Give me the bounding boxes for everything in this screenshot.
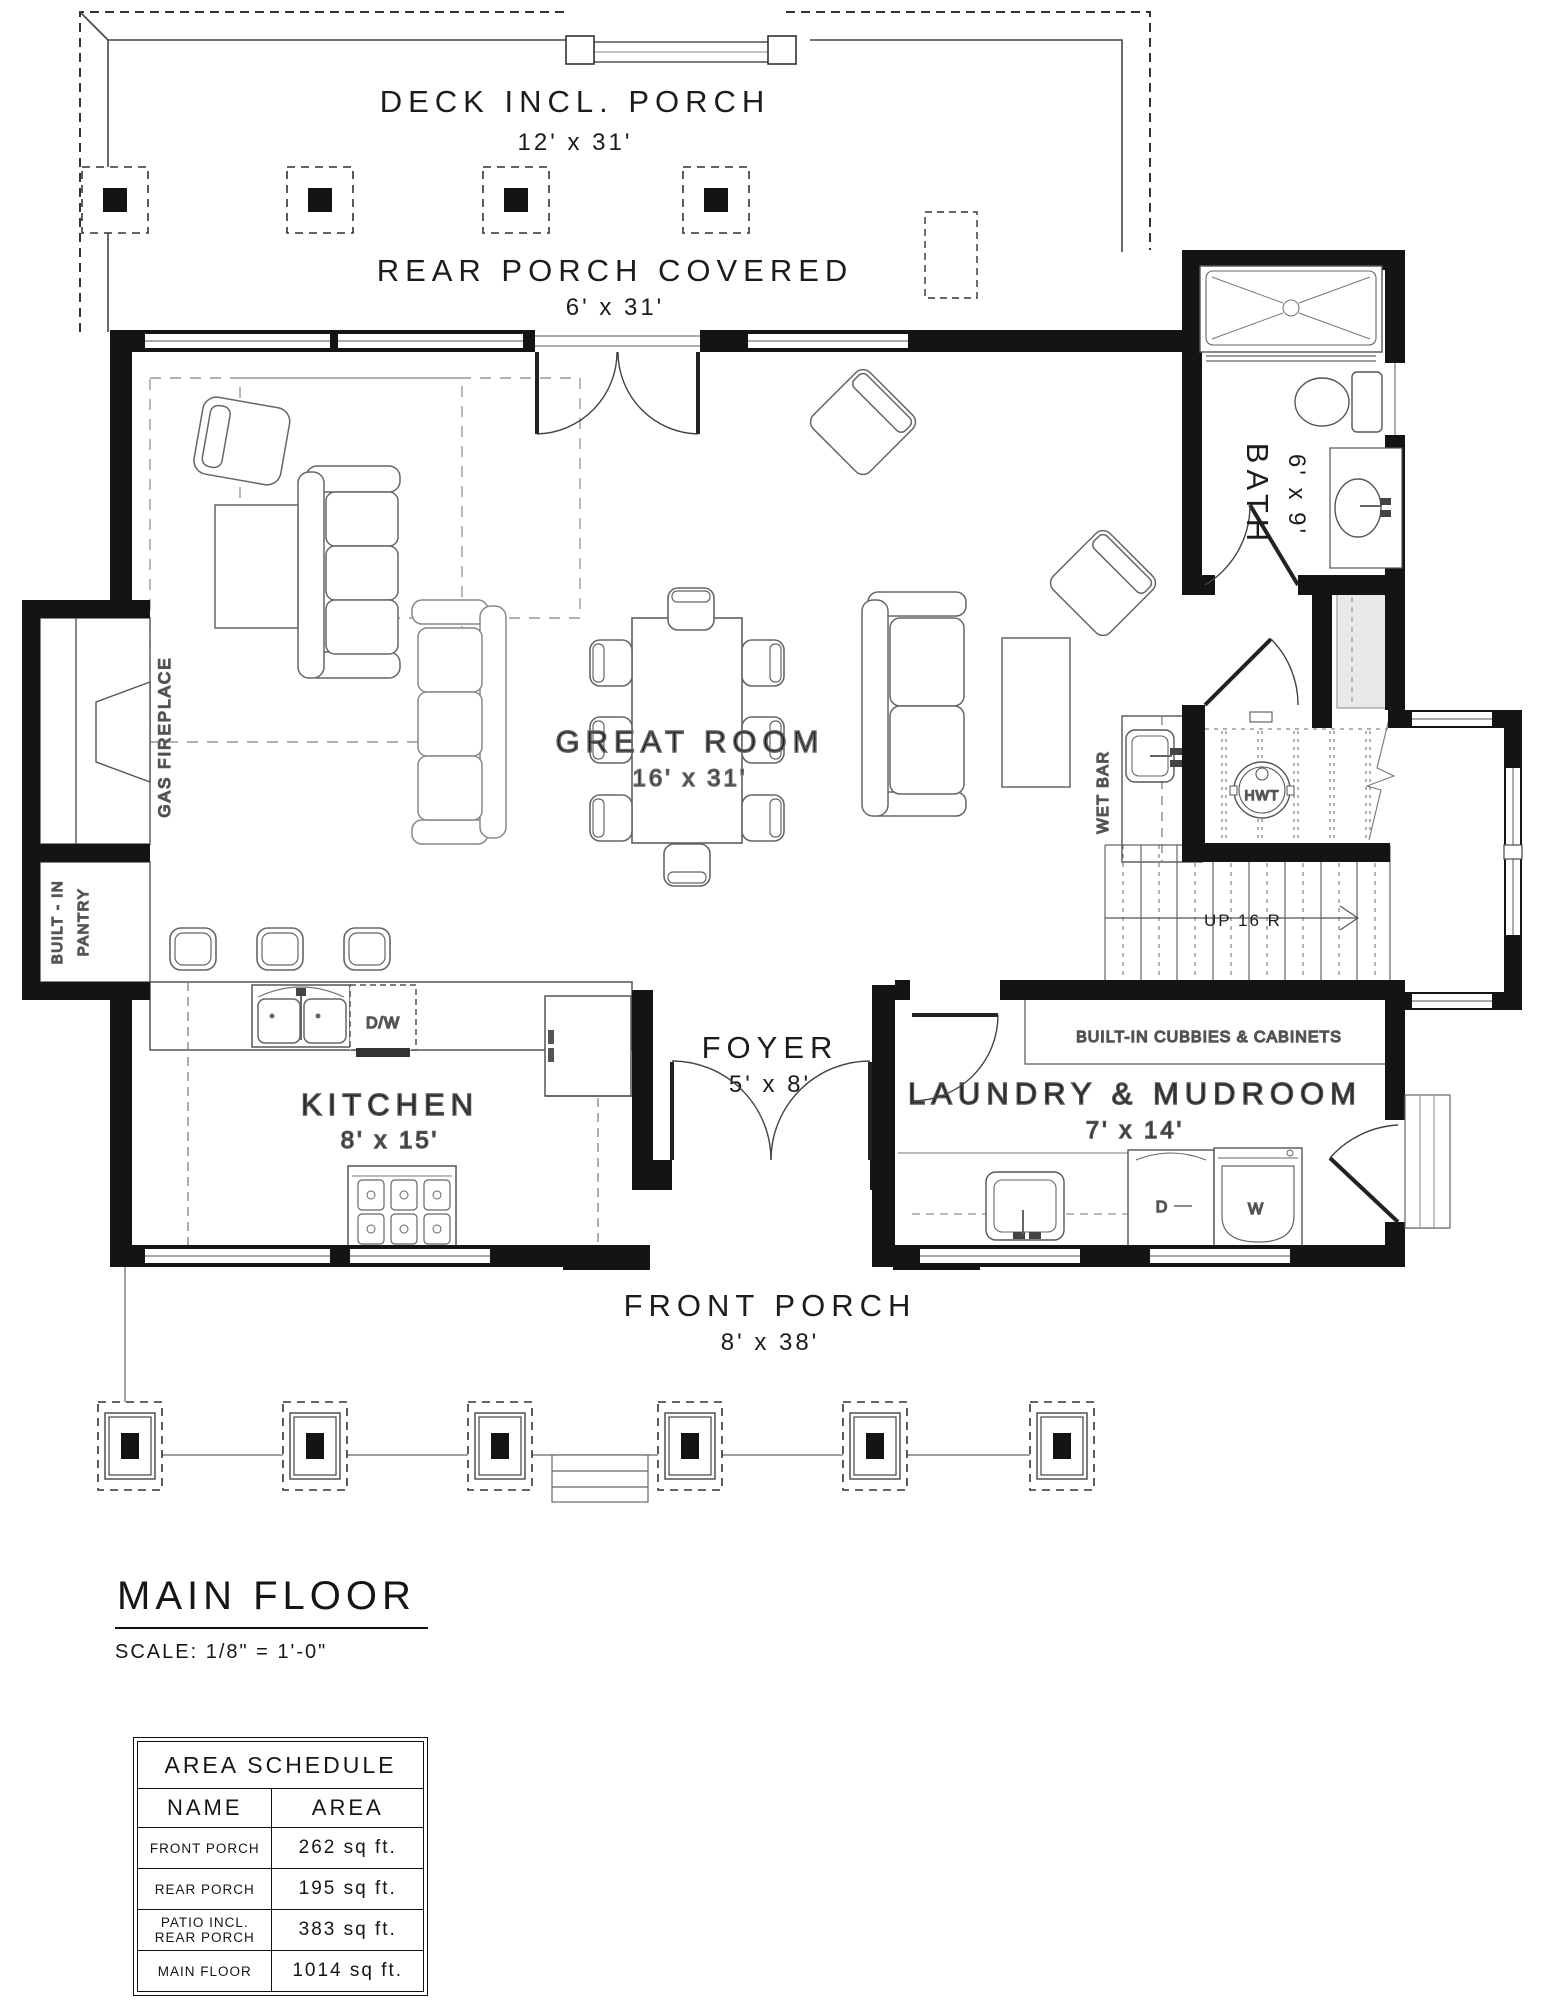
bar-stool — [170, 928, 216, 970]
pantry-label-2: PANTRY — [75, 888, 92, 956]
chaise — [412, 600, 506, 844]
column-header-name: NAME — [138, 1789, 272, 1827]
row-area: 195 sq ft. — [272, 1869, 423, 1909]
bar-stool — [257, 928, 303, 970]
dining-chair — [590, 640, 632, 686]
deck-post-outline — [925, 212, 977, 298]
porch-post — [658, 1402, 722, 1490]
rear-porch-label: REAR PORCH COVERED — [377, 253, 854, 288]
gas-fireplace-label: GAS FIREPLACE — [155, 656, 174, 817]
stair-closet: HWT — [1205, 577, 1388, 839]
upper-stair-shading — [1337, 577, 1388, 708]
deck-stair-post-left — [566, 36, 594, 64]
window-mullion — [1504, 845, 1522, 859]
table-row: PATIO INCL.REAR PORCH 383 sq ft. — [138, 1910, 423, 1951]
row-name: REAR PORCH — [155, 1882, 255, 1897]
pantry-nook: BUILT - IN PANTRY — [40, 862, 150, 982]
deck-post — [287, 167, 353, 233]
row-name-2: REAR PORCH — [155, 1930, 255, 1945]
coffee-table — [1002, 638, 1070, 787]
side-stoop — [1405, 1095, 1450, 1228]
great-room: GREAT ROOM 16' x 31' — [150, 365, 1160, 886]
deck-label: DECK INCL. PORCH — [380, 84, 771, 119]
pantry-label-1: BUILT - IN — [49, 880, 66, 964]
table-row: FRONT PORCH 262 sq ft. — [138, 1828, 423, 1869]
armchair-angled — [806, 365, 919, 478]
table-header-row: NAME AREA — [138, 1789, 423, 1828]
floor-plan-sheet: DECK INCL. PORCH 12' x 31' REAR PORCH CO… — [0, 0, 1541, 2000]
title-block: MAIN FLOOR SCALE: 1/8" = 1'-0" — [115, 1574, 428, 1664]
dining-chair — [590, 795, 632, 841]
armchair — [192, 395, 292, 487]
dryer: D — [1128, 1150, 1214, 1246]
rear-french-doors — [537, 352, 698, 434]
wet-bar-label: WET BAR — [1095, 750, 1112, 833]
porch-post — [843, 1402, 907, 1490]
great-room-label: GREAT ROOM — [556, 724, 825, 759]
fireplace-nook: GAS FIREPLACE — [40, 618, 174, 844]
front-porch-dims: 8' x 38' — [721, 1329, 820, 1356]
dishwasher: D/W — [350, 985, 416, 1057]
deck-post — [483, 167, 549, 233]
washer-label: W — [1248, 1201, 1264, 1218]
area-schedule-title: AREA SCHEDULE — [138, 1742, 423, 1789]
shower — [1200, 266, 1382, 361]
stair-break-line — [1367, 715, 1394, 840]
dining-chair — [664, 844, 710, 886]
area-schedule-table: AREA SCHEDULE NAME AREA FRONT PORCH 262 … — [133, 1737, 428, 1996]
hot-water-tank: HWT — [1230, 712, 1294, 818]
cubbies-label: BUILT-IN CUBBIES & CABINETS — [1076, 1029, 1342, 1046]
row-area: 1014 sq ft. — [272, 1951, 423, 1991]
foyer: FOYER 5' x 8' — [702, 1030, 839, 1098]
deck-post — [82, 167, 148, 233]
kitchen-dims: 8' x 15' — [341, 1127, 440, 1154]
foyer-label: FOYER — [702, 1030, 839, 1065]
kitchen-sink — [252, 985, 350, 1047]
coffee-table — [215, 505, 298, 628]
vanity-sink — [1330, 448, 1402, 568]
kitchen: D/W KITCHEN 8' x 15' — [150, 928, 632, 1250]
laundry-label: LAUNDRY & MUDROOM — [908, 1076, 1362, 1111]
row-area: 383 sq ft. — [272, 1910, 423, 1950]
front-porch-label: FRONT PORCH — [624, 1288, 917, 1323]
range — [348, 1166, 456, 1250]
bath: BATH 6' x 9' — [1200, 266, 1402, 568]
bath-label: BATH — [1240, 443, 1275, 547]
deck: DECK INCL. PORCH 12' x 31' REAR PORCH CO… — [80, 12, 1150, 332]
hall-door — [1205, 639, 1298, 705]
column-header-area: AREA — [272, 1789, 423, 1827]
stairs-label: UP 16 R — [1204, 911, 1282, 930]
refrigerator — [545, 996, 632, 1243]
dining-chair — [742, 640, 784, 686]
porch-post — [468, 1402, 532, 1490]
porch-post — [1030, 1402, 1094, 1490]
foyer-dims: 5' x 8' — [729, 1071, 811, 1098]
rear-porch-dims: 6' x 31' — [566, 294, 665, 321]
bar-stool — [344, 928, 390, 970]
plan-title: MAIN FLOOR — [115, 1574, 428, 1629]
row-name: MAIN FLOOR — [158, 1964, 252, 1979]
loveseat — [862, 592, 966, 816]
bath-dims: 6' x 9' — [1283, 454, 1310, 536]
front-steps — [552, 1455, 648, 1502]
dishwasher-label: D/W — [366, 1015, 400, 1032]
deck-stair-post-right — [768, 36, 796, 64]
table-row: MAIN FLOOR 1014 sq ft. — [138, 1951, 423, 1991]
porch-post — [283, 1402, 347, 1490]
toilet — [1295, 372, 1382, 432]
row-name: PATIO INCL. — [161, 1915, 249, 1930]
deck-dims: 12' x 31' — [518, 129, 633, 156]
hwt-label: HWT — [1245, 787, 1280, 803]
kitchen-label: KITCHEN — [301, 1087, 479, 1122]
sofa — [298, 466, 400, 678]
dining-chair — [668, 588, 714, 630]
laundry-dims: 7' x 14' — [1086, 1117, 1185, 1144]
row-name: FRONT PORCH — [150, 1841, 260, 1856]
laundry: BUILT-IN CUBBIES & CABINETS D W LAUNDRY … — [898, 998, 1393, 1246]
dining-chair — [742, 795, 784, 841]
row-area: 262 sq ft. — [272, 1828, 423, 1868]
laundry-sink — [986, 1172, 1064, 1240]
floor-plan-drawing: DECK INCL. PORCH 12' x 31' REAR PORCH CO… — [0, 0, 1541, 2000]
plan-scale: SCALE: 1/8" = 1'-0" — [115, 1641, 428, 1664]
deck-post — [683, 167, 749, 233]
table-row: REAR PORCH 195 sq ft. — [138, 1869, 423, 1910]
great-room-dims: 16' x 31' — [633, 765, 748, 792]
porch-post — [98, 1402, 162, 1490]
dryer-label: D — [1156, 1199, 1169, 1216]
armchair-angled — [1046, 526, 1159, 639]
washer: W — [1214, 1148, 1302, 1246]
